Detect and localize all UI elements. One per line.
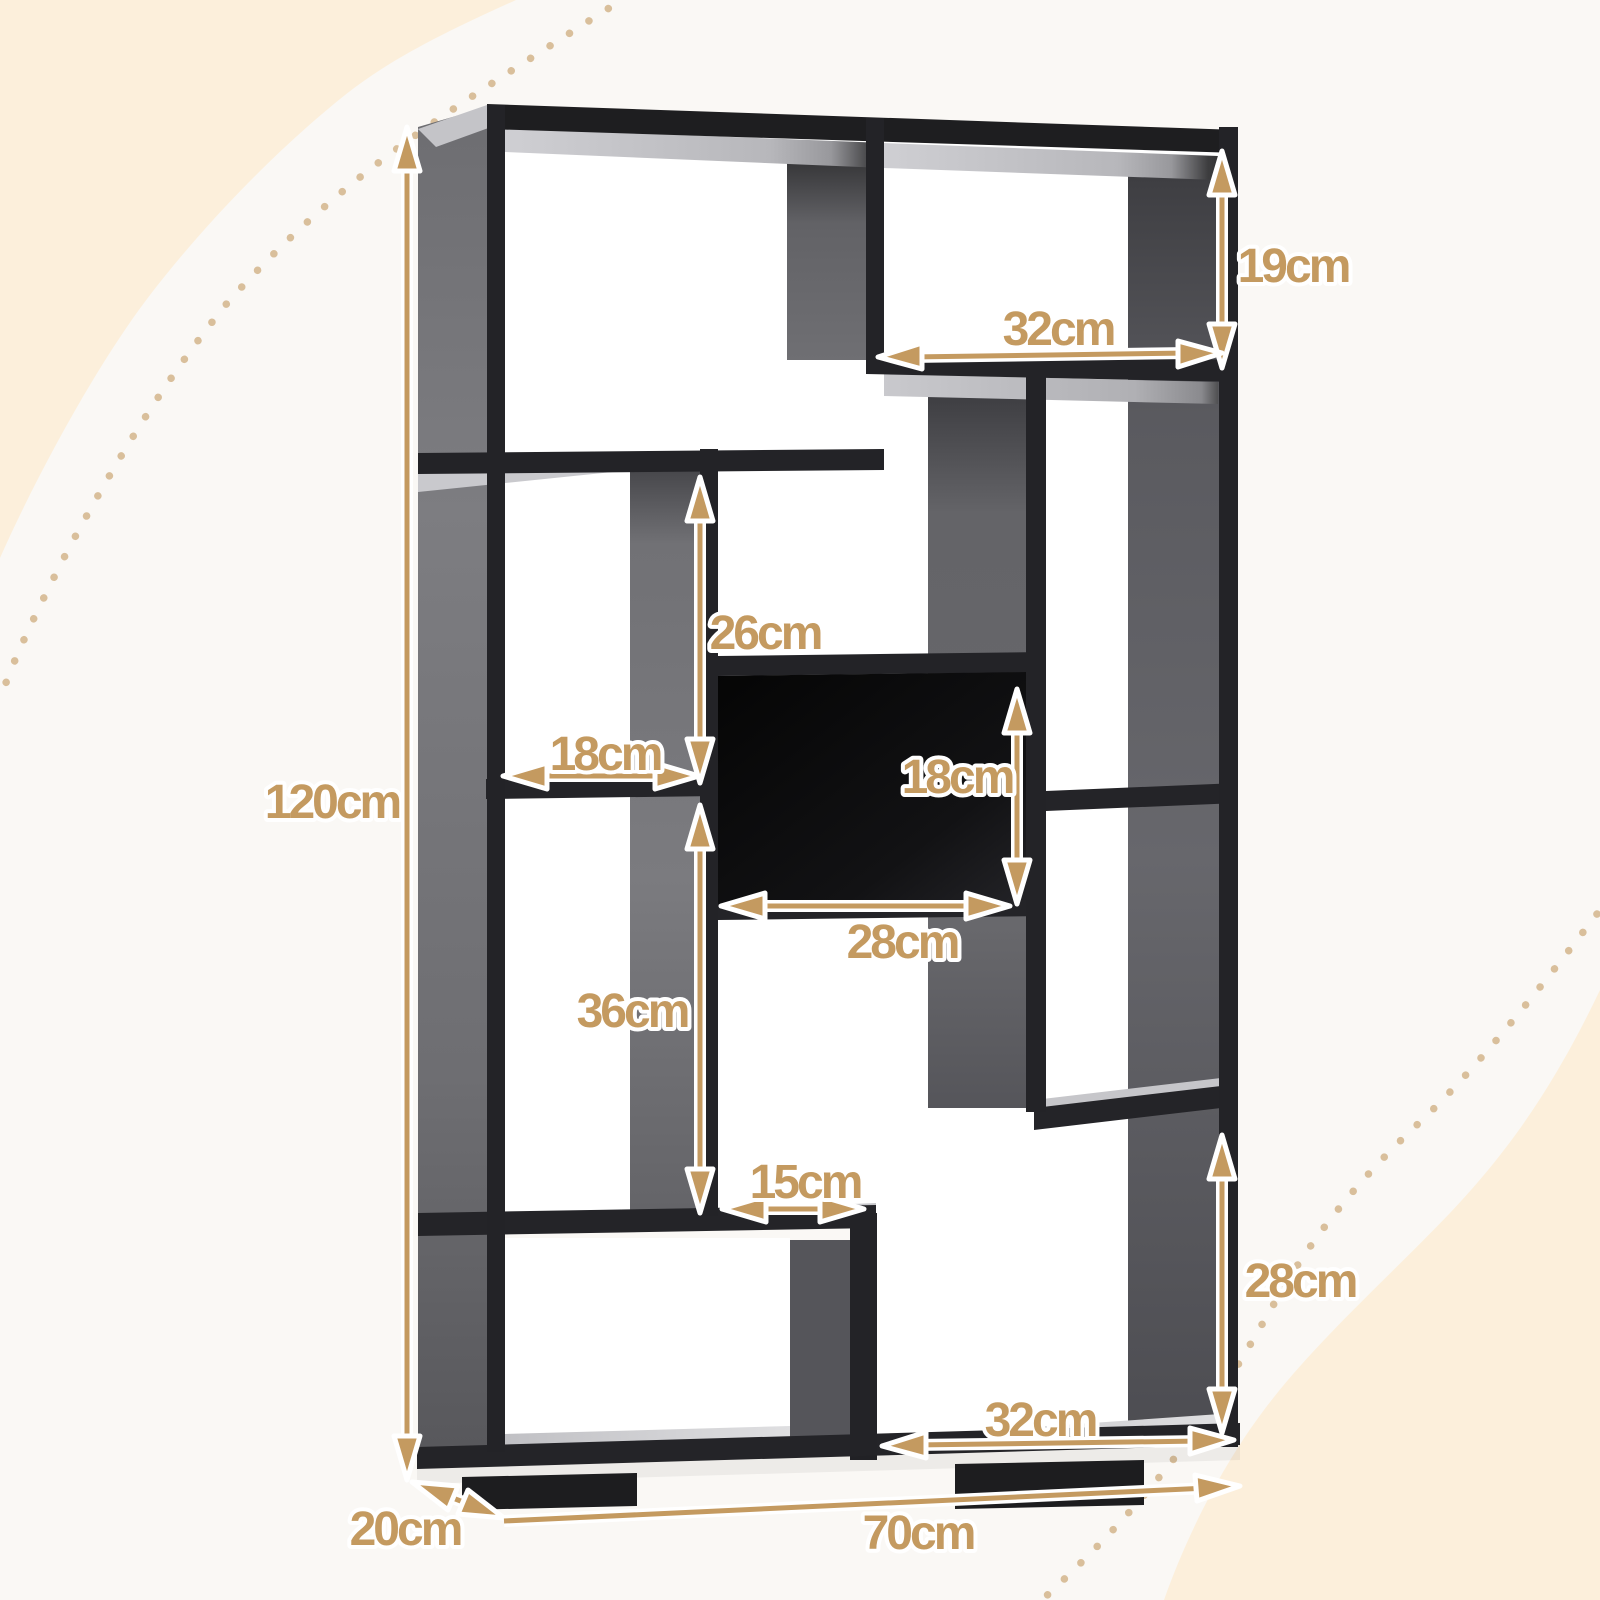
svg-text:20cm: 20cm <box>350 1503 461 1556</box>
svg-text:32cm: 32cm <box>985 1394 1096 1447</box>
svg-text:32cm: 32cm <box>1003 303 1114 356</box>
svg-text:28cm: 28cm <box>847 916 958 969</box>
svg-text:19cm: 19cm <box>1238 240 1349 293</box>
svg-text:120cm: 120cm <box>265 776 400 829</box>
svg-text:15cm: 15cm <box>750 1156 861 1209</box>
svg-text:28cm: 28cm <box>1245 1255 1356 1308</box>
svg-text:70cm: 70cm <box>863 1507 974 1560</box>
svg-text:18cm: 18cm <box>550 728 661 781</box>
svg-text:18cm: 18cm <box>902 751 1013 804</box>
svg-text:26cm: 26cm <box>710 607 821 660</box>
svg-text:36cm: 36cm <box>577 985 688 1038</box>
